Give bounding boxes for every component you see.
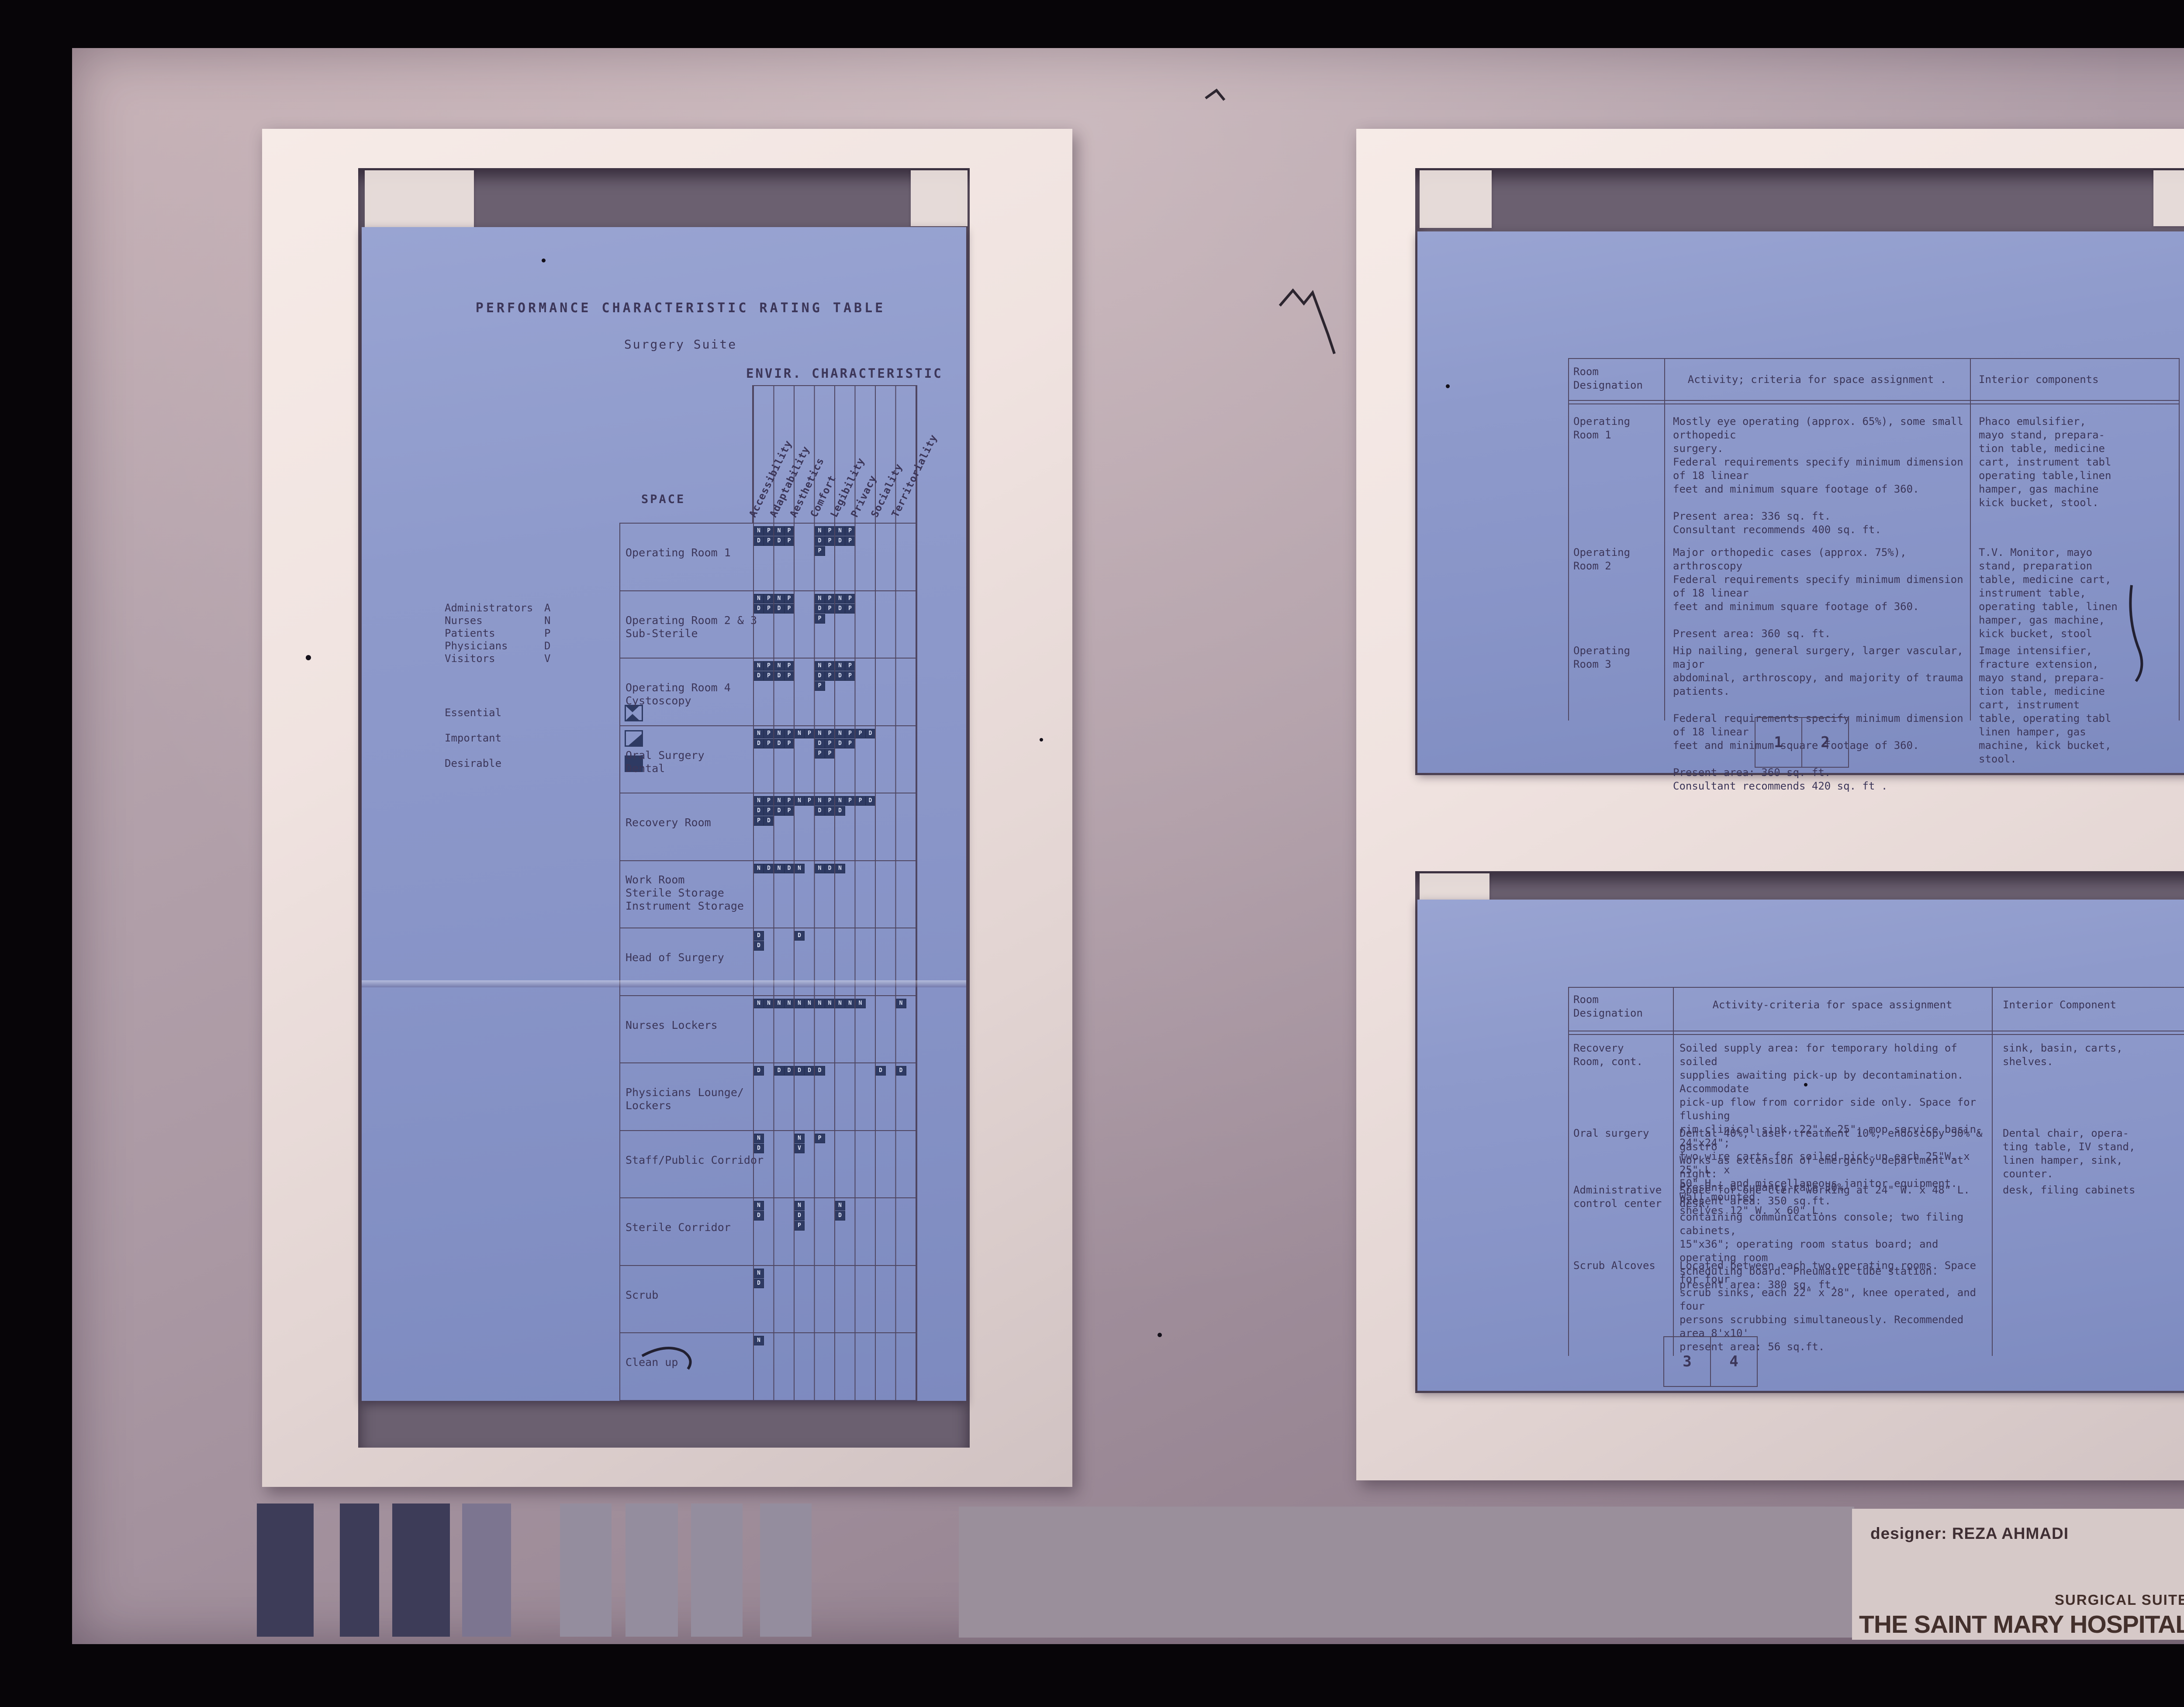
rating-mark: D — [875, 1066, 886, 1076]
rating-mark: N — [794, 999, 805, 1008]
presentation-board: PERFORMANCE CHARACTERISTIC RATING TABLE … — [72, 48, 2184, 1644]
rating-mark-group: NPDP — [774, 526, 794, 546]
characteristic-label: Privacy — [849, 507, 863, 519]
legend-user-label: Nurses — [445, 614, 483, 627]
rating-mark: P — [845, 526, 855, 536]
rating-mark: D — [835, 536, 845, 546]
space-name: Sterile Corridor — [625, 1221, 731, 1234]
rating-mark: D — [815, 604, 825, 614]
rating-mark-group: NN — [815, 999, 835, 1008]
dust-speck — [1446, 384, 1450, 388]
left-window: PERFORMANCE CHARACTERISTIC RATING TABLE … — [358, 168, 970, 1448]
space-name: Recovery Room — [625, 816, 711, 829]
rating-mark: P — [784, 526, 795, 536]
rating-mark: N — [784, 999, 795, 1008]
color-bar — [760, 1504, 812, 1637]
legend-user-row: VisitorsV — [445, 652, 576, 665]
rating-mark: D — [753, 931, 764, 941]
rating-mark: P — [764, 526, 774, 536]
rating-mark-group: PD — [855, 796, 875, 806]
rating-mark: D — [784, 864, 795, 873]
rating-mark: N — [774, 999, 784, 1008]
rating-mark: P — [845, 739, 855, 748]
rating-mark: N — [815, 864, 825, 873]
tape-strip — [911, 170, 968, 226]
dust-speck — [1158, 1333, 1162, 1337]
tape-strip — [1420, 873, 1489, 900]
table-row: Oral Surgery DentalNPDPNPDPNPNPDPPPNPDPP… — [620, 726, 916, 794]
legend-user-row: PatientsP — [445, 627, 576, 640]
rating-mark: N — [753, 661, 764, 671]
rating-mark: D — [753, 739, 764, 748]
rating-mark: D — [794, 1066, 805, 1076]
legend-user-code: N — [544, 614, 550, 627]
column-header-room: Room Designation — [1573, 365, 1643, 392]
space-column-header: SPACE — [641, 493, 685, 506]
rating-mark-group: NPDP — [753, 661, 774, 681]
right-top-window: Room Designation Activity; criteria for … — [1415, 168, 2184, 775]
rating-mark: N — [835, 864, 845, 873]
rating-mark: N — [753, 1269, 764, 1278]
legend-rating-label: Essential — [445, 707, 501, 719]
rating-mark: P — [815, 681, 825, 691]
characteristic-label: Aesthetics — [788, 507, 802, 519]
rating-mark: D — [764, 816, 774, 826]
rating-mark: P — [845, 671, 855, 681]
column-header-interior: Interior components — [1979, 373, 2099, 386]
rating-mark: N — [774, 864, 784, 873]
rating-mark: P — [845, 796, 855, 806]
rating-mark: N — [794, 1134, 805, 1143]
rating-mark: N — [774, 594, 784, 603]
interior-components: T.V. Monitor, mayo stand, preparation ta… — [1979, 546, 2171, 641]
rating-mark: N — [855, 999, 866, 1008]
rating-mark: N — [764, 999, 774, 1008]
rating-mark: P — [764, 661, 774, 671]
rating-mark-group: ND — [753, 1201, 774, 1221]
rating-mark-group: NPDP — [835, 594, 855, 614]
right-bottom-window: Room Designation Activity-criteria for s… — [1415, 871, 2184, 1393]
tape-strip — [365, 170, 474, 228]
rating-mark: N — [835, 1201, 845, 1210]
rating-mark: D — [753, 536, 764, 546]
rating-mark: N — [794, 1201, 805, 1210]
rating-mark: D — [753, 1279, 764, 1288]
color-bar — [691, 1504, 743, 1637]
space-name: Operating Room 4 Cystoscopy — [625, 681, 731, 707]
rating-mark: P — [825, 604, 835, 614]
rating-mark-group: NPDPP — [815, 526, 835, 556]
dust-speck — [306, 655, 311, 660]
rating-mark: P — [825, 796, 835, 806]
color-bar — [625, 1504, 678, 1637]
rating-mark: D — [794, 931, 805, 941]
rating-mark: D — [865, 796, 876, 806]
rating-mark: P — [784, 604, 795, 614]
space-name: Staff/Public Corridor — [625, 1154, 764, 1167]
rating-mark: P — [764, 604, 774, 614]
rating-mark-group: D — [753, 1066, 774, 1076]
rating-mark-group: NP — [794, 796, 814, 806]
rating-mark-group: PD — [855, 729, 875, 738]
rating-mark: N — [835, 999, 845, 1008]
rating-mark: N — [804, 999, 815, 1008]
column-header-activity: Activity-criteria for space assignment — [1673, 998, 1992, 1012]
interior-components: desk, filing cabinets — [2003, 1183, 2182, 1197]
rating-mark-group: NPDP — [753, 729, 774, 748]
table-row: ScrubND — [620, 1266, 916, 1334]
rating-mark: D — [804, 1066, 815, 1076]
space-name: Nurses Lockers — [625, 1019, 718, 1032]
rating-mark: P — [804, 729, 815, 738]
rating-mark: N — [815, 729, 825, 738]
column-grid-lines — [753, 1266, 917, 1333]
table-row: Nurses LockersNNNNNNNNNNNN — [620, 996, 916, 1064]
color-bar — [560, 1504, 612, 1637]
rating-mark-group: NPD — [835, 796, 855, 816]
space-name: Operating Room 1 — [625, 546, 731, 559]
rating-mark-group: NPDP — [774, 729, 794, 748]
rating-mark: P — [764, 796, 774, 806]
page-number-tab: 3 — [1663, 1336, 1711, 1387]
rating-mark-group: DD — [794, 1066, 814, 1076]
rating-mark: P — [784, 739, 795, 748]
space-name: Work Room Sterile Storage Instrument Sto… — [625, 873, 744, 913]
rating-mark: P — [784, 671, 795, 681]
rating-mark: N — [815, 796, 825, 806]
space-name: Clean up — [625, 1356, 678, 1369]
page-number-tab: 2 — [1802, 717, 1849, 768]
table-row: Sterile CorridorNDNDPND — [620, 1198, 916, 1266]
rating-mark-group: ND — [774, 864, 794, 873]
color-bar — [257, 1504, 314, 1637]
rating-mark: N — [794, 796, 805, 806]
criteria-sheet-2: Room Designation Activity-criteria for s… — [1417, 900, 2184, 1391]
rating-mark: D — [753, 1066, 764, 1076]
room-designation: Operating Room 1 — [1573, 415, 1665, 442]
rating-mark-group: NN — [835, 999, 855, 1008]
rating-mark: P — [815, 614, 825, 624]
column-grid-lines — [753, 1333, 917, 1400]
rating-mark: P — [815, 1134, 825, 1143]
characteristic-label: Legibility — [829, 507, 843, 519]
legend-user-label: Physicians — [445, 640, 508, 652]
rating-mark-group: N — [753, 1336, 774, 1345]
rating-mark: P — [764, 594, 774, 603]
rating-mark: D — [835, 604, 845, 614]
project-title: SURGICAL SUITE — [2055, 1592, 2184, 1608]
room-designation: Recovery Room, cont. — [1573, 1041, 1665, 1069]
dust-speck — [1040, 738, 1043, 741]
legend-user-code: A — [544, 602, 550, 614]
rating-mark: P — [784, 594, 795, 603]
rating-mark-group: NPDP — [774, 661, 794, 681]
rating-mark: P — [845, 594, 855, 603]
rating-mark-group: NPDPP — [815, 594, 835, 624]
rating-mark: P — [825, 661, 835, 671]
rating-mark: D — [835, 739, 845, 748]
rating-mark: N — [835, 594, 845, 603]
rating-mark: P — [855, 796, 866, 806]
characteristic-label: Territoriality — [889, 507, 903, 519]
rating-mark: D — [865, 729, 876, 738]
rating-mark: N — [835, 526, 845, 536]
dust-speck — [542, 259, 546, 262]
table-row: Work Room Sterile Storage Instrument Sto… — [620, 861, 916, 929]
rating-mark: P — [784, 729, 795, 738]
rating-mark: P — [845, 604, 855, 614]
user-group-legend: AdministratorsANursesNPatientsPPhysician… — [445, 602, 576, 665]
gray-panel — [959, 1507, 1854, 1638]
rating-mark: P — [825, 739, 835, 748]
rating-mark-group: NPDP — [774, 594, 794, 614]
page-tabs: 34 — [1663, 1336, 1758, 1387]
rating-mark: P — [784, 536, 795, 546]
rating-mark: N — [815, 526, 825, 536]
axis-header: ENVIR. CHARACTERISTIC — [746, 366, 943, 381]
title-block: designer: REZA AHMADI SURGICAL SUITE THE… — [1852, 1509, 2184, 1640]
characteristic-label: Accessibility — [747, 507, 761, 519]
criteria-table-1: Room Designation Activity; criteria for … — [1568, 358, 2180, 721]
legend-user-label: Visitors — [445, 652, 495, 665]
rating-mark: N — [774, 661, 784, 671]
table-row: Operating Room 2 & 3 Sub-SterileNPDPNPDP… — [620, 591, 916, 659]
rating-mark: N — [753, 526, 764, 536]
rating-mark: P — [845, 729, 855, 738]
rating-mark-group: NP — [794, 729, 814, 738]
column-grid-lines — [753, 1131, 917, 1198]
rating-mark: N — [794, 864, 805, 873]
room-designation: Scrub Alcoves — [1573, 1259, 1665, 1272]
rating-mark: D — [753, 604, 764, 614]
rating-mark-group: NPDP — [815, 796, 835, 816]
space-name: Head of Surgery — [625, 951, 724, 964]
rating-mark: N — [753, 999, 764, 1008]
rating-mark: D — [794, 1211, 805, 1221]
rating-mark: D — [753, 1144, 764, 1153]
rating-mark-group: NPDP — [835, 526, 855, 546]
paper-fold — [362, 980, 966, 987]
table-row: Operating Room 1NPDPNPDPNPDPPNPDP — [620, 524, 916, 591]
rating-mark-group: NPDPPD — [753, 796, 774, 826]
rating-mark: P — [815, 546, 825, 556]
rating-mark: D — [774, 604, 784, 614]
rating-mark: P — [825, 749, 835, 759]
interior-components: Image intensifier, fracture extension, m… — [1979, 644, 2171, 766]
room-designation: Operating Room 3 — [1573, 644, 1665, 671]
rating-mark-group: D — [896, 1066, 916, 1076]
rating-mark: N — [815, 594, 825, 603]
rating-mark: P — [764, 671, 774, 681]
right-mat: Room Designation Activity; criteria for … — [1356, 129, 2184, 1480]
page-tabs: 12 — [1755, 717, 1849, 768]
rating-mark: N — [815, 999, 825, 1008]
rating-mark: P — [764, 729, 774, 738]
rating-mark-group: NPDPPP — [815, 729, 835, 759]
characteristic-label: Comfort — [808, 507, 822, 519]
table-row: Clean upN — [620, 1333, 916, 1400]
space-name: Scrub — [625, 1289, 658, 1302]
legend-rating-row: Important — [445, 732, 501, 757]
rating-mark-group: ND — [753, 1134, 774, 1153]
rating-mark: P — [855, 729, 866, 738]
rating-mark: D — [815, 671, 825, 681]
rating-mark-group: D — [875, 1066, 895, 1076]
rating-mark: P — [764, 739, 774, 748]
rating-mark: P — [764, 536, 774, 546]
rating-mark: N — [774, 796, 784, 806]
rating-mark: D — [774, 671, 784, 681]
room-designation: Operating Room 2 — [1573, 546, 1665, 573]
rating-mark: D — [753, 1211, 764, 1221]
rating-mark-group: N — [896, 999, 916, 1008]
legend-user-label: Administrators — [445, 602, 533, 614]
rating-mark: P — [784, 806, 795, 816]
rating-mark: D — [774, 739, 784, 748]
legend-rating-label: Desirable — [445, 757, 501, 769]
page-number-tab: 4 — [1711, 1336, 1758, 1387]
slide-photo: PERFORMANCE CHARACTERISTIC RATING TABLE … — [0, 0, 2184, 1707]
tape-strip — [2153, 170, 2184, 226]
rating-mark-group: ND — [753, 1269, 774, 1288]
rating-mark-group: ND — [835, 1201, 855, 1221]
tape-strip — [1420, 170, 1492, 228]
interior-components: sink, basin, carts, shelves. — [2003, 1041, 2182, 1069]
column-header-activity: Activity; criteria for space assignment … — [1664, 373, 1970, 386]
criteria-sheet-1: Room Designation Activity; criteria for … — [1417, 231, 2184, 773]
rating-mark: D — [753, 941, 764, 951]
designer-credit: designer: REZA AHMADI — [1870, 1524, 2069, 1543]
legend-rating-row: Desirable — [445, 757, 501, 783]
rating-mark-group: DD — [774, 1066, 794, 1076]
rating-mark: P — [845, 661, 855, 671]
rating-mark: N — [753, 796, 764, 806]
rating-mark: D — [815, 1066, 825, 1076]
legend-user-code: P — [544, 627, 550, 640]
rating-mark: P — [825, 671, 835, 681]
rating-mark: P — [825, 594, 835, 603]
rating-mark: D — [835, 671, 845, 681]
column-header-interior: Interior Component — [2003, 998, 2116, 1012]
rating-mark: P — [804, 796, 815, 806]
left-mat: PERFORMANCE CHARACTERISTIC RATING TABLE … — [262, 129, 1072, 1487]
rating-mark: D — [896, 1066, 906, 1076]
rating-mark-group: ND — [753, 864, 774, 873]
rating-mark: V — [794, 1144, 805, 1153]
rating-mark-group: D — [794, 931, 814, 941]
rating-mark: N — [794, 729, 805, 738]
legend-user-row: PhysiciansD — [445, 640, 576, 652]
legend-user-row: NursesN — [445, 614, 576, 627]
rating-mark: D — [815, 739, 825, 748]
table-row: Physicians Lounge/ LockersDDDDDDDD — [620, 1063, 916, 1131]
interior-components: Phaco emulsifier, mayo stand, prepara- t… — [1979, 415, 2171, 510]
rating-mark: P — [784, 661, 795, 671]
rating-mark: P — [825, 526, 835, 536]
rating-mark: D — [753, 671, 764, 681]
room-designation: Oral surgery — [1573, 1127, 1665, 1140]
rating-mark-group: NV — [794, 1134, 814, 1153]
rating-mark: N — [753, 864, 764, 873]
rating-mark: P — [825, 729, 835, 738]
space-name: Physicians Lounge/ Lockers — [625, 1086, 744, 1112]
table-row: Staff/Public CorridorNDNVP — [620, 1131, 916, 1199]
rating-mark: P — [784, 796, 795, 806]
characteristic-label: Sociality — [869, 507, 883, 519]
rating-mark: D — [774, 1066, 784, 1076]
page-number-tab: 1 — [1755, 717, 1802, 768]
rating-mark: D — [764, 864, 774, 873]
rating-mark: N — [835, 729, 845, 738]
legend-rating-row: Essential — [445, 707, 501, 732]
color-bar — [392, 1504, 450, 1637]
rating-mark: N — [825, 999, 835, 1008]
rating-mark: D — [815, 536, 825, 546]
legend-rating-label: Important — [445, 732, 501, 744]
rating-mark-group: N — [835, 864, 855, 873]
rating-mark: N — [774, 526, 784, 536]
rating-mark-group: NPDP — [753, 526, 774, 546]
rating-mark-group: DD — [753, 931, 774, 951]
legend-user-row: AdministratorsA — [445, 602, 576, 614]
rating-mark: N — [896, 999, 906, 1008]
rating-mark-group: NN — [794, 999, 814, 1008]
interior-components: Dental chair, opera- ting table, IV stan… — [2003, 1127, 2182, 1181]
criteria-table-2: Room Designation Activity-criteria for s… — [1568, 987, 2184, 1356]
document-title: PERFORMANCE CHARACTERISTIC RATING TABLE — [467, 300, 895, 316]
color-bar — [462, 1504, 511, 1637]
rating-mark: D — [835, 806, 845, 816]
rating-mark-group: NDP — [794, 1201, 814, 1231]
room-designation: Administrative control center — [1573, 1183, 1665, 1210]
rating-matrix-table: Operating Room 1NPDPNPDPNPDPPNPDPOperati… — [619, 523, 917, 1401]
rating-mark: P — [764, 806, 774, 816]
rating-mark: N — [753, 1134, 764, 1143]
rating-mark: D — [815, 806, 825, 816]
activity-criteria: Mostly eye operating (approx. 65%), some… — [1673, 415, 1966, 537]
rating-mark: N — [753, 594, 764, 603]
rating-legend: EssentialImportantDesirable — [445, 707, 501, 783]
color-bar — [340, 1504, 379, 1637]
rating-mark: N — [815, 661, 825, 671]
rating-mark: P — [794, 1221, 805, 1231]
rating-mark: N — [774, 729, 784, 738]
rating-mark: N — [845, 999, 855, 1008]
dust-speck — [1804, 1083, 1807, 1086]
characteristic-label: Adaptability — [767, 507, 781, 519]
rating-mark-group: NN — [774, 999, 794, 1008]
rating-mark: N — [753, 729, 764, 738]
rating-mark: D — [753, 806, 764, 816]
rating-mark-group: NPDP — [835, 729, 855, 748]
legend-user-label: Patients — [445, 627, 495, 639]
rating-mark: D — [774, 536, 784, 546]
rating-mark-group: NPDP — [753, 594, 774, 614]
rating-mark-group: NPDPP — [815, 661, 835, 691]
column-header-room: Room Designation — [1573, 993, 1643, 1020]
client-title: THE SAINT MARY HOSPITAL — [1859, 1610, 2184, 1639]
rating-mark: P — [825, 536, 835, 546]
characteristics-header: AccessibilityAdaptabilityAestheticsComfo… — [752, 385, 917, 524]
rating-mark: D — [835, 1211, 845, 1221]
legend-user-code: D — [544, 640, 550, 652]
rating-mark: P — [845, 536, 855, 546]
rating-mark-group: N — [794, 864, 814, 873]
space-name: Oral Surgery Dental — [625, 749, 705, 775]
rating-mark: N — [835, 661, 845, 671]
rating-mark-group: N — [855, 999, 875, 1008]
table-row: Recovery RoomNPDPPDNPDPNPNPDPNPDPD — [620, 793, 916, 861]
